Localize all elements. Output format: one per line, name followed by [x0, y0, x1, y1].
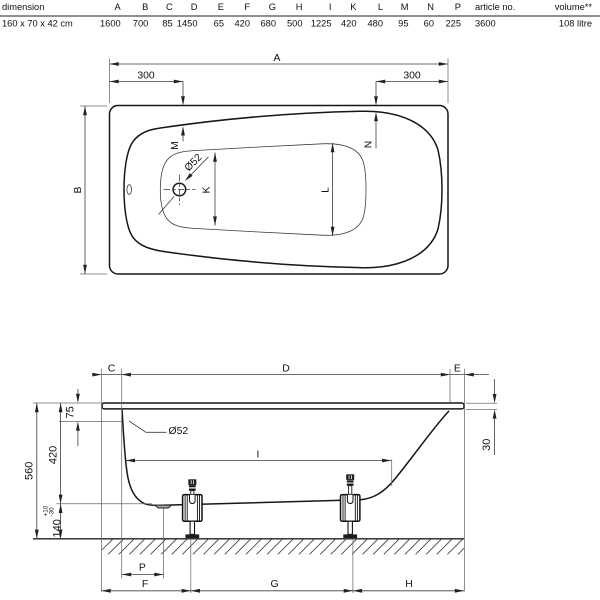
svg-text:A: A	[114, 2, 121, 12]
svg-text:M: M	[170, 141, 181, 150]
svg-text:H: H	[405, 579, 413, 590]
svg-text:Ø52: Ø52	[169, 426, 189, 437]
svg-text:680: 680	[260, 19, 276, 29]
svg-text:I: I	[257, 450, 260, 461]
svg-text:L: L	[321, 187, 332, 193]
svg-text:500: 500	[287, 19, 303, 29]
svg-text:300: 300	[403, 71, 421, 82]
svg-text:1600: 1600	[100, 19, 121, 29]
svg-text:B: B	[73, 186, 84, 193]
svg-text:article no.: article no.	[475, 2, 515, 12]
svg-text:F: F	[142, 579, 148, 590]
svg-text:480: 480	[367, 19, 383, 29]
svg-text:D: D	[191, 2, 198, 12]
svg-text:225: 225	[445, 19, 461, 29]
svg-text:K: K	[350, 2, 357, 12]
svg-text:M: M	[401, 2, 409, 12]
svg-text:Ø52: Ø52	[183, 152, 205, 174]
svg-text:G: G	[269, 2, 276, 12]
svg-text:108 litre: 108 litre	[559, 19, 592, 29]
svg-text:420: 420	[341, 19, 357, 29]
svg-text:160 x 70 x 42 cm: 160 x 70 x 42 cm	[2, 19, 73, 29]
svg-text:P: P	[139, 563, 146, 574]
svg-text:560: 560	[24, 462, 36, 480]
svg-text:75: 75	[65, 406, 77, 418]
svg-text:C: C	[108, 364, 116, 375]
svg-text:300: 300	[137, 71, 155, 82]
svg-text:H: H	[296, 2, 303, 12]
svg-text:60: 60	[424, 19, 434, 29]
svg-text:K: K	[202, 186, 213, 193]
svg-text:85: 85	[162, 19, 172, 29]
svg-text:30: 30	[481, 439, 493, 451]
svg-text:700: 700	[133, 19, 149, 29]
svg-text:A: A	[274, 53, 281, 64]
svg-text:65: 65	[214, 19, 224, 29]
svg-text:volume**: volume**	[555, 2, 593, 12]
svg-text:420: 420	[48, 446, 60, 464]
svg-text:E: E	[218, 2, 224, 12]
svg-text:1225: 1225	[311, 19, 332, 29]
svg-text:420: 420	[234, 19, 250, 29]
svg-text:1450: 1450	[177, 19, 198, 29]
svg-text:95: 95	[398, 19, 408, 29]
svg-text:dimension: dimension	[2, 2, 44, 12]
svg-text:B: B	[142, 2, 148, 12]
svg-text:I: I	[329, 2, 332, 12]
svg-text:F: F	[244, 2, 250, 12]
svg-text:P: P	[455, 2, 461, 12]
svg-text:E: E	[454, 364, 461, 375]
svg-text:C: C	[166, 2, 173, 12]
svg-text:3600: 3600	[475, 19, 496, 29]
svg-text:L: L	[378, 2, 383, 12]
svg-text:N: N	[363, 141, 374, 149]
svg-text:140: 140	[51, 519, 63, 537]
svg-text:G: G	[270, 579, 278, 590]
svg-text:-30: -30	[48, 507, 55, 517]
svg-text:N: N	[427, 2, 434, 12]
svg-text:D: D	[282, 364, 290, 375]
